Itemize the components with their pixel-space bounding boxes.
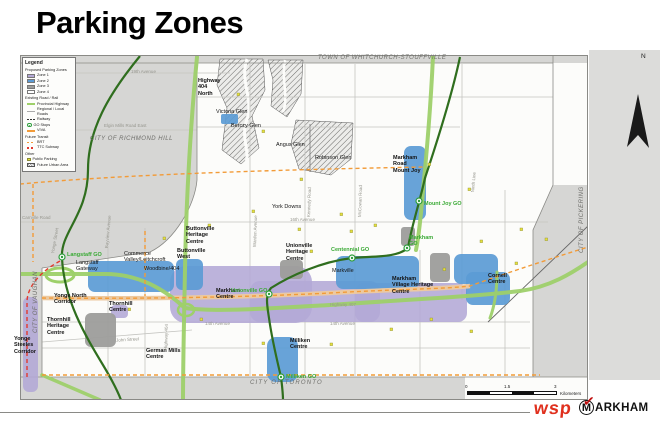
legend-future-heading: Future Transit <box>25 135 73 140</box>
scale-bar <box>467 391 557 395</box>
area-label-victoria-glen: Victoria Glen <box>216 109 247 115</box>
zone-1-label: Zone 1 <box>37 73 49 78</box>
area-label-milliken-centre: Milliken Centre <box>290 338 310 351</box>
boundary-label-whitchurch-stouffville: TOWN OF WHITCHURCH-STOUFFVILLE <box>318 55 446 61</box>
legend-row-zone4: Zone 4 <box>27 90 73 95</box>
zone-4-label: Zone 4 <box>37 90 49 95</box>
scale-unit-label: Kilometers <box>560 391 581 396</box>
railway-symbol <box>27 119 35 120</box>
provincial-highway-symbol <box>27 103 35 105</box>
legend-row-zone2: Zone 2 <box>27 79 73 84</box>
area-label-markham-road-mount-joy: Markham Road Mount Joy <box>393 155 421 174</box>
road-label-14th-avenue-w: 14th Avenue <box>205 321 230 326</box>
legend-title: Legend <box>25 60 73 67</box>
footer-divider <box>0 412 530 413</box>
boundary-label-pickering: CITY OF PICKERING <box>579 186 585 253</box>
road-label-kennedy-road: Kennedy Road <box>306 187 312 217</box>
legend-row-regional-roads: Regional / Local Roads <box>27 107 73 117</box>
area-label-angus-glen: Angus Glen <box>276 142 305 148</box>
zone-4-swatch <box>27 90 35 94</box>
future-urban-area-symbol <box>27 163 35 168</box>
scale-tick-3: 3 <box>554 384 557 389</box>
ttc-subway-label: TTC Subway <box>37 145 59 150</box>
area-label-york-downs: York Downs <box>272 204 301 210</box>
area-label-berczy-glen: Berczy Glen <box>231 123 261 129</box>
zone-2-label: Zone 2 <box>37 79 49 84</box>
viva-symbol <box>27 130 35 132</box>
go-label-unionville: Unionville GO <box>231 288 267 294</box>
go-station-langstaff <box>59 254 65 260</box>
scale-bar-segment <box>490 392 512 394</box>
area-label-highway-404-north: Highway 404 North <box>198 78 221 97</box>
markham-logo-check-icon: ✓ <box>582 392 595 410</box>
road-label-highway-407: Highway 407 <box>330 302 356 307</box>
legend-row-zone1: Zone 1 <box>27 73 73 78</box>
scale-tick-0: 0 <box>465 384 468 389</box>
markham-logo: M ✓ ARKHAM <box>579 400 649 415</box>
go-label-milliken: Milliken GO <box>286 374 316 380</box>
north-label: N <box>641 53 646 60</box>
zone-3-swatch <box>27 85 35 89</box>
public-parking-label: Public Parking <box>33 157 57 162</box>
road-label-carrville: Carrville Road <box>22 215 51 220</box>
zone-1-swatch <box>27 74 35 78</box>
legend-road-heading: Existing Road / Rail <box>25 96 73 101</box>
railway-label: Railway <box>37 117 50 122</box>
legend-row-viva: VIVA <box>27 128 73 133</box>
provincial-highway-label: Provincial Highway <box>37 102 69 107</box>
go-station-centennial <box>349 255 355 261</box>
legend-row-future-urban: Future Urban Area <box>27 163 73 168</box>
zone2-woodbine-404 <box>176 259 203 290</box>
markham-logo-text: ARKHAM <box>595 402 649 414</box>
road-label-14th-avenue-e: 14th Avenue <box>330 321 355 326</box>
go-label-centennial: Centennial GO <box>331 247 369 253</box>
public-parking-symbol <box>27 158 31 162</box>
regional-roads-symbol <box>27 111 35 112</box>
legend-row-public-parking: Public Parking <box>27 157 73 162</box>
legend-row-go-stops: GO Stops <box>27 123 73 128</box>
boundary-label-vaughan: CITY OF VAUGHAN <box>33 271 39 333</box>
go-stop-symbol <box>27 123 32 128</box>
area-label-markville: Markville <box>332 268 354 274</box>
brt-label: BRT <box>37 140 45 145</box>
legend-row-zone3: Zone 3 <box>27 84 73 89</box>
legend-row-railway: Railway <box>27 117 73 122</box>
area-label-woodbine-404: Woodbine/404 <box>144 266 179 272</box>
area-label-unionville-heritage-centre: Unionville Heritage Centre <box>286 243 312 262</box>
legend-row-ttc-subway: TTC Subway <box>27 145 73 150</box>
area-label-buttonville-west: Buttonville West <box>177 248 205 261</box>
go-label-markham: Markham GO <box>409 235 433 247</box>
legend: Legend Proposed Parking Zones Zone 1 Zon… <box>22 57 76 172</box>
wsp-logo: wsp <box>533 398 573 419</box>
slide: Parking Zones <box>0 0 660 425</box>
area-label-yonge-north-corridor: Yonge North Corridor <box>54 293 87 306</box>
scale-bar-segment <box>468 392 490 394</box>
boundary-label-richmond-hill: CITY OF RICHMOND HILL <box>90 136 173 142</box>
parking-zones-map <box>0 0 660 425</box>
legend-other-heading: Other <box>25 152 73 157</box>
area-label-robinson-glen: Robinson Glen <box>315 155 351 161</box>
area-label-cornell-centre: Cornell Centre <box>488 273 507 286</box>
scale-tick-1-5: 1.5 <box>504 384 510 389</box>
go-label-langstaff: Langstaff GO <box>67 252 102 258</box>
go-stops-label: GO Stops <box>34 123 51 128</box>
boundary-label-toronto: CITY OF TORONTO <box>250 380 323 386</box>
go-station-mount-joy <box>416 198 422 204</box>
legend-row-provincial-highway: Provincial Highway <box>27 102 73 107</box>
road-label-16th-avenue: 16th Avenue <box>290 217 315 222</box>
scale-bar-segment <box>512 392 534 394</box>
area-label-buttonville-heritage-centre: Buttonville Heritage Centre <box>186 226 214 245</box>
area-label-yonge-steeles-corridor: Yonge Steeles Corridor <box>14 336 36 355</box>
scale-bar-segment <box>534 392 556 394</box>
road-label-elgin-mills: Elgin Mills Road East <box>104 123 147 128</box>
road-label-19th-avenue: 19th Avenue <box>131 69 156 74</box>
area-label-thornhill-centre: Thornhill Centre <box>109 301 133 314</box>
brt-symbol <box>27 142 35 144</box>
ttc-subway-symbol <box>27 147 35 149</box>
go-label-mount-joy: Mount Joy GO <box>424 201 462 207</box>
regional-roads-label: Regional / Local Roads <box>37 107 73 117</box>
legend-zones-heading: Proposed Parking Zones <box>25 68 73 73</box>
legend-row-brt: BRT <box>27 140 73 145</box>
map-se-corner <box>465 377 588 400</box>
road-label-highway-404: Highway 404 <box>163 324 169 350</box>
map-right-margin <box>589 50 660 380</box>
area-label-commerce-valley-leitchcroft: Commerce Valley/Leitchcroft <box>124 251 165 264</box>
markham-area-ne <box>553 63 588 185</box>
viva-label: VIVA <box>37 128 45 133</box>
area-label-langstaff-gateway: Langstaff Gateway <box>76 260 99 273</box>
area-label-markham-village-heritage-centre: Markham Village Heritage Centre <box>392 276 433 295</box>
future-urban-area-label: Future Urban Area <box>37 163 68 168</box>
area-label-thornhill-heritage-centre: Thornhill Heritage Centre <box>47 317 71 336</box>
zone-3-label: Zone 3 <box>37 84 49 89</box>
zone-2-swatch <box>27 79 35 83</box>
